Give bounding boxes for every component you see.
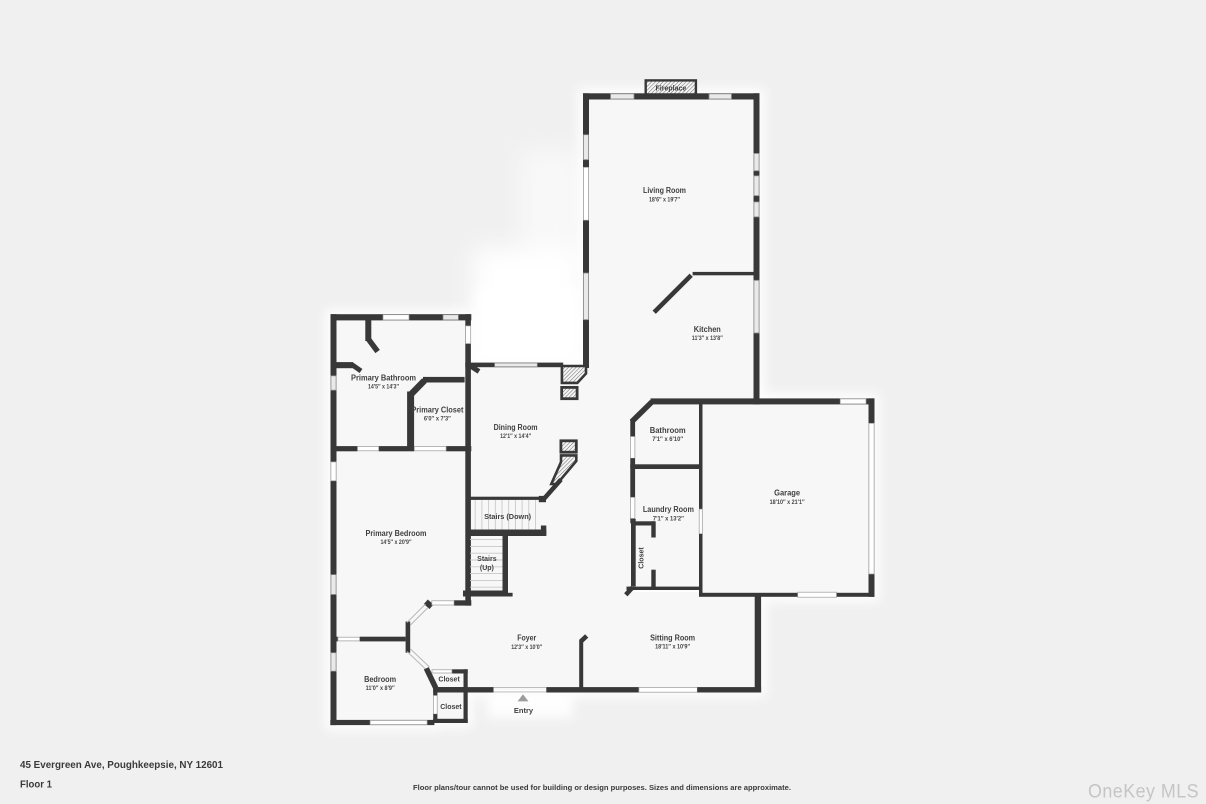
svg-text:7′1″ x 13′2″: 7′1″ x 13′2″ bbox=[653, 515, 684, 522]
svg-text:Living Room: Living Room bbox=[643, 186, 686, 195]
svg-text:7′1″ x 6′10″: 7′1″ x 6′10″ bbox=[652, 436, 683, 443]
svg-text:18′11″ x 10′9″: 18′11″ x 10′9″ bbox=[655, 644, 690, 651]
svg-text:Closet: Closet bbox=[438, 677, 460, 684]
svg-text:Dining Room: Dining Room bbox=[494, 423, 538, 432]
svg-text:Garage: Garage bbox=[774, 489, 801, 498]
svg-text:Closet: Closet bbox=[440, 704, 462, 711]
svg-text:Primary Bedroom: Primary Bedroom bbox=[366, 529, 427, 538]
svg-text:OneKey MLS: OneKey MLS bbox=[1088, 781, 1199, 803]
svg-text:Laundry Room: Laundry Room bbox=[643, 505, 694, 514]
svg-text:Closet: Closet bbox=[639, 547, 646, 569]
svg-text:Bedroom: Bedroom bbox=[364, 675, 396, 684]
svg-text:Primary Bathroom: Primary Bathroom bbox=[351, 373, 416, 382]
svg-text:Stairs: Stairs bbox=[477, 556, 497, 563]
svg-text:(Up): (Up) bbox=[480, 565, 494, 572]
svg-text:Stairs (Down): Stairs (Down) bbox=[484, 514, 531, 521]
svg-text:Bathroom: Bathroom bbox=[650, 426, 686, 435]
svg-text:14′5″ x 14′3″: 14′5″ x 14′3″ bbox=[368, 384, 399, 391]
svg-text:Fireplace: Fireplace bbox=[656, 86, 687, 93]
svg-text:Entry: Entry bbox=[514, 706, 534, 715]
svg-text:6′0″ x 7′3″: 6′0″ x 7′3″ bbox=[424, 416, 451, 423]
svg-text:12′1″ x 14′4″: 12′1″ x 14′4″ bbox=[500, 433, 531, 440]
svg-text:Foyer: Foyer bbox=[517, 634, 536, 643]
svg-text:18′6″ x 19′7″: 18′6″ x 19′7″ bbox=[649, 197, 680, 204]
svg-text:12′3″ x 10′0″: 12′3″ x 10′0″ bbox=[511, 644, 542, 651]
svg-text:Kitchen: Kitchen bbox=[694, 325, 721, 334]
svg-text:Floor plans/tour cannot be use: Floor plans/tour cannot be used for buil… bbox=[413, 785, 791, 792]
svg-text:Sitting Room: Sitting Room bbox=[650, 634, 695, 643]
svg-text:Floor 1: Floor 1 bbox=[20, 779, 52, 791]
svg-text:14′5″ x 20′9″: 14′5″ x 20′9″ bbox=[381, 539, 412, 546]
svg-text:18′10″ x 21′1″: 18′10″ x 21′1″ bbox=[770, 499, 805, 506]
svg-text:45 Evergreen Ave, Poughkeepsie: 45 Evergreen Ave, Poughkeepsie, NY 12601 bbox=[20, 759, 223, 771]
svg-text:11′3″ x 13′8″: 11′3″ x 13′8″ bbox=[692, 335, 723, 342]
svg-text:Primary Closet: Primary Closet bbox=[411, 406, 463, 415]
svg-text:11′0″ x 8′9″: 11′0″ x 8′9″ bbox=[366, 685, 395, 692]
